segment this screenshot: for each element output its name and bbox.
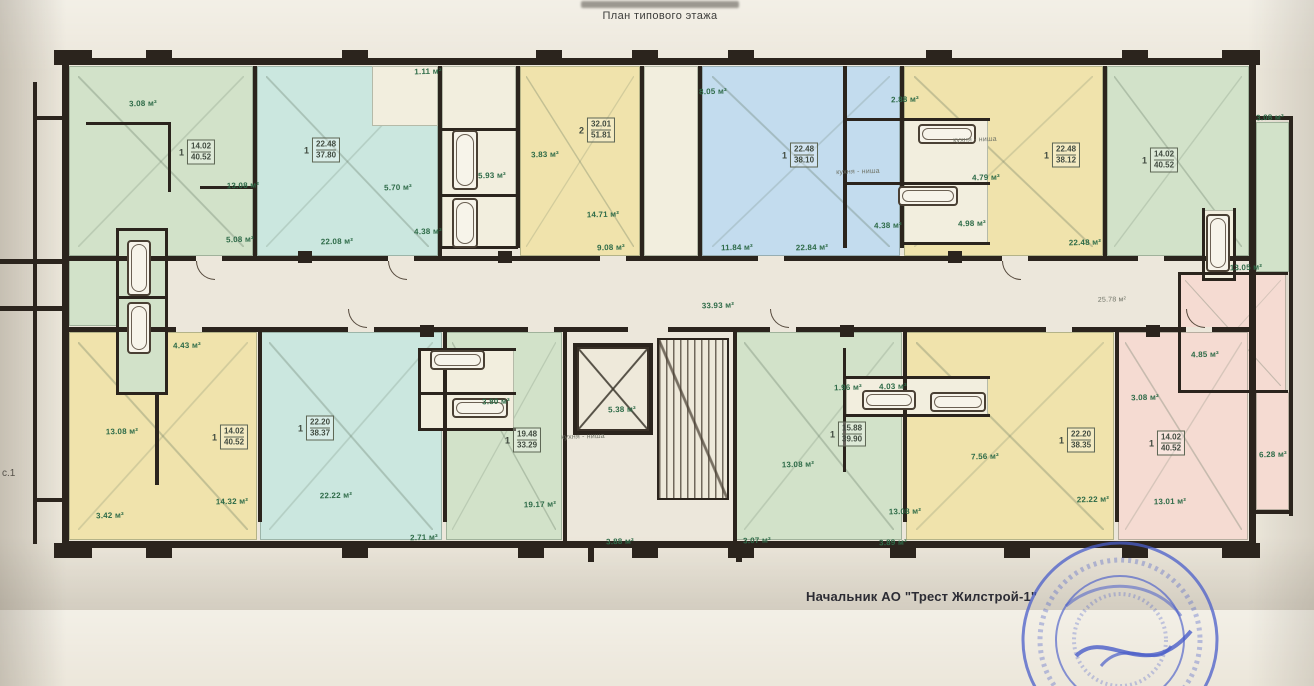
room-area-label: 33.93 м²: [702, 302, 735, 311]
wall: [843, 348, 846, 472]
wall: [1115, 332, 1119, 522]
wall: [843, 66, 847, 248]
wall: [116, 392, 168, 395]
wall: [632, 543, 658, 558]
wall: [0, 306, 64, 311]
wall: [1289, 116, 1293, 516]
wall: [342, 50, 368, 65]
door-swing-arc: [770, 309, 789, 328]
door-swing-arc: [388, 261, 407, 280]
wall: [69, 256, 1249, 261]
wall: [342, 543, 368, 558]
wall-pier: [948, 251, 962, 263]
wall: [420, 392, 516, 395]
wall: [258, 332, 262, 522]
wall: [155, 395, 159, 485]
wall: [1222, 50, 1260, 65]
wall: [563, 332, 567, 542]
wall: [116, 228, 119, 395]
wall-pier: [1146, 325, 1160, 337]
room-fill: [260, 332, 442, 540]
room-fill: [1256, 392, 1289, 510]
room-fill: [520, 66, 640, 256]
wall: [845, 182, 990, 185]
wall: [1249, 58, 1256, 548]
wall: [253, 66, 257, 256]
elevator-shaft: [577, 347, 649, 431]
wall: [1178, 390, 1288, 393]
wall: [0, 259, 64, 264]
wall: [1103, 66, 1107, 256]
wall: [418, 348, 421, 431]
wall-pier: [840, 325, 854, 337]
wall: [1233, 208, 1236, 280]
wall: [728, 50, 754, 65]
wall: [588, 548, 594, 562]
wall: [1202, 278, 1236, 281]
wall: [903, 332, 907, 522]
wall-pier: [298, 251, 312, 263]
wall: [146, 50, 172, 65]
struck-heading: [581, 1, 739, 8]
door-swing-arc: [348, 309, 367, 328]
bathtub-icon: [452, 398, 508, 418]
wall: [1178, 272, 1288, 275]
wall: [1256, 510, 1289, 514]
door-gap: [1186, 327, 1212, 332]
room-fill: [1118, 332, 1248, 540]
wall: [536, 50, 562, 65]
wall: [649, 343, 653, 435]
wall-pier: [420, 325, 434, 337]
wall: [632, 50, 658, 65]
wall: [845, 118, 990, 121]
bathtub-icon: [898, 186, 958, 206]
room-fill: [906, 332, 1114, 540]
wall: [1178, 274, 1181, 392]
bathtub-icon: [452, 198, 478, 248]
wall: [33, 82, 37, 544]
title-block: План типового этажа: [581, 0, 739, 22]
round-stamp: [1006, 536, 1234, 686]
room-fill: [69, 258, 117, 326]
wall: [1122, 50, 1148, 65]
section-mark: с.1: [2, 468, 15, 479]
wall: [165, 228, 168, 395]
door-gap: [348, 327, 374, 332]
wall: [516, 66, 520, 248]
door-swing-arc: [1002, 261, 1021, 280]
wall: [736, 548, 742, 562]
bathtub-icon: [127, 240, 151, 296]
bathtub-icon: [430, 350, 485, 370]
wall: [146, 543, 172, 558]
wall: [573, 431, 653, 435]
wall: [168, 122, 171, 192]
wall: [903, 242, 990, 245]
room-fill: [736, 332, 902, 540]
door-gap: [1046, 327, 1072, 332]
wall: [926, 50, 952, 65]
wall: [200, 186, 256, 189]
room-fill: [1256, 122, 1289, 272]
scanned-floor-plan-page: { "document": { "heading": "План типовог…: [0, 0, 1314, 610]
signature-caption: Начальник АО "Трест Жилстрой-1": [806, 589, 1037, 604]
room-fill: [644, 66, 698, 256]
wall: [1202, 208, 1205, 280]
wall: [116, 296, 168, 299]
wall: [438, 66, 442, 256]
door-gap: [628, 327, 668, 332]
room-fill: [702, 66, 900, 256]
wall: [640, 66, 644, 256]
wall: [37, 498, 62, 502]
wall: [62, 58, 69, 548]
wall: [54, 543, 92, 558]
wall: [1256, 116, 1289, 120]
door-gap: [1138, 256, 1164, 261]
wall: [37, 116, 62, 120]
bathtub-icon: [918, 124, 976, 144]
door-gap: [770, 327, 796, 332]
wall: [420, 428, 516, 431]
door-gap: [528, 327, 554, 332]
wall: [845, 376, 990, 379]
door-swing-arc: [196, 261, 215, 280]
wall: [733, 332, 737, 542]
staircase: [657, 338, 729, 500]
bathtub-icon: [452, 130, 478, 190]
page-title: План типового этажа: [581, 10, 739, 22]
wall: [900, 66, 904, 248]
floor-plan: 3.08 м²13.08 м²5.08 м²22.08 м²1.11 м²5.9…: [0, 0, 1314, 610]
wall: [116, 228, 168, 231]
bathtub-icon: [930, 392, 986, 412]
door-gap: [600, 256, 626, 261]
wall: [62, 58, 1256, 65]
room-fill: [372, 66, 438, 126]
door-gap: [758, 256, 784, 261]
wall: [86, 122, 170, 125]
wall-pier: [498, 251, 512, 263]
wall: [890, 543, 916, 558]
bathtub-icon: [862, 390, 916, 410]
wall: [518, 543, 544, 558]
room-area-label: 25.78 м²: [1098, 296, 1126, 304]
bathtub-icon: [1206, 214, 1230, 272]
bathtub-icon: [127, 302, 151, 354]
wall: [845, 414, 990, 417]
wall: [698, 66, 702, 256]
door-gap: [176, 327, 202, 332]
wall: [54, 50, 92, 65]
wall: [442, 194, 518, 197]
